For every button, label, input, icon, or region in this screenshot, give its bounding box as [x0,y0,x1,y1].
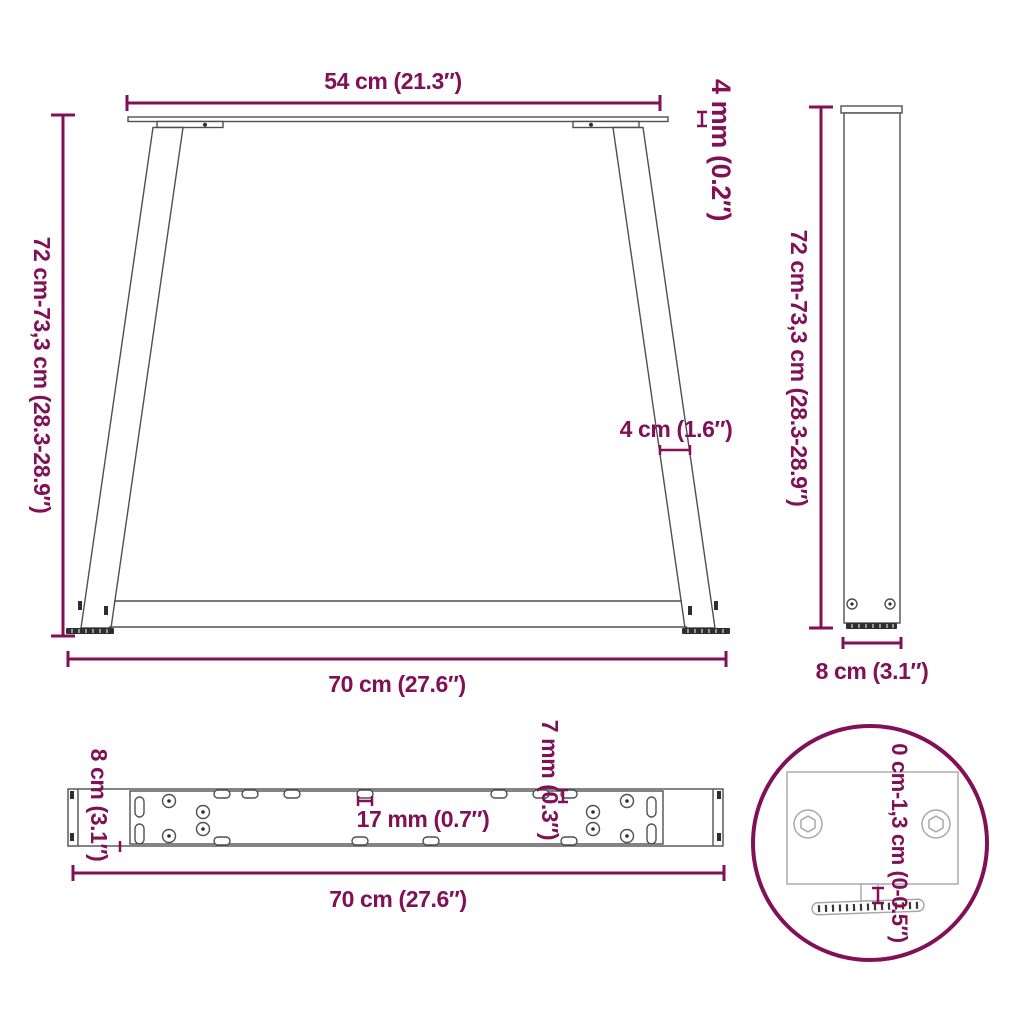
front-leg-width-dimension: 4 cm (1.6″) [620,416,733,455]
right-foot [682,628,730,634]
left-mounting-plate [157,122,223,128]
left-foot [66,628,114,634]
bottom-crossbar [109,601,687,627]
beam-length-label: 70 cm (27.6″) [329,886,467,912]
right-leg-adjuster-mark [714,601,718,610]
detail-adjustment-label: 0 cm-1,3 cm (0-0.5″) [887,743,912,942]
left-leg-adjuster-mark [78,601,82,610]
side-height-label: 72 cm-73,3 cm (28.3-28.9″) [786,230,812,507]
beam-hole-spacing-label: 17 mm (0.7″) [357,806,490,832]
right-mounting-plate [573,122,639,128]
beam-end-pin [717,791,721,799]
front-view: 54 cm (21.3″) 4 mm (0.2″) [29,68,736,697]
left-plate-screw [203,123,207,127]
adjustable-foot-detail: 0 cm-1,3 cm (0-0.5″) [753,726,987,960]
beam-depth-label: 8 cm (3.1″) [86,749,112,862]
right-leg [613,128,715,629]
front-top-width-dimension: 54 cm (21.3″) [127,68,660,111]
right-leg-adjuster-mark [688,606,692,615]
side-height-dimension: 72 cm-73,3 cm (28.3-28.9″) [786,107,833,628]
side-top-plate [841,106,902,113]
diagram-canvas: 54 cm (21.3″) 4 mm (0.2″) [0,0,1024,1024]
front-bottom-width-label: 70 cm (27.6″) [328,671,466,697]
detail-foot-stem [861,884,878,901]
side-depth-dimension: 8 cm (3.1″) [816,637,929,684]
beam-end-pin [717,833,721,841]
front-top-width-label: 54 cm (21.3″) [324,68,462,94]
dimension-diagram: 54 cm (21.3″) 4 mm (0.2″) [0,0,1024,1024]
left-leg-adjuster-mark [104,606,108,615]
front-leg-width-label: 4 cm (1.6″) [620,416,733,442]
beam-hole-diameter-label: 7 mm (0.3″) [537,720,563,840]
side-view: 72 cm-73,3 cm (28.3-28.9″) 8 cm (3.1″) [786,106,928,684]
beam-hole-diameter-dimension: 7 mm (0.3″) [537,720,568,840]
beam-end-pin [70,791,74,799]
side-depth-label: 8 cm (3.1″) [816,658,929,684]
detail-leg-bottom [787,772,958,884]
left-leg [81,128,183,629]
side-leg-body [844,113,900,623]
top-view-beam: 8 cm (3.1″) 17 mm (0.7″) 7 mm (0.3″) 70 … [68,720,724,912]
beam-end-pin [70,833,74,841]
side-knurled-foot [846,623,897,629]
front-bottom-width-dimension: 70 cm (27.6″) [68,651,726,697]
front-plate-thickness-label: 4 mm (0.2″) [706,79,736,221]
front-height-label: 72 cm-73,3 cm (28.3-28.9″) [29,237,55,514]
right-plate-screw [589,123,593,127]
front-height-dimension: 72 cm-73,3 cm (28.3-28.9″) [29,115,75,636]
beam-length-dimension: 70 cm (27.6″) [73,865,724,912]
front-plate-thickness-dimension: 4 mm (0.2″) [697,79,736,221]
